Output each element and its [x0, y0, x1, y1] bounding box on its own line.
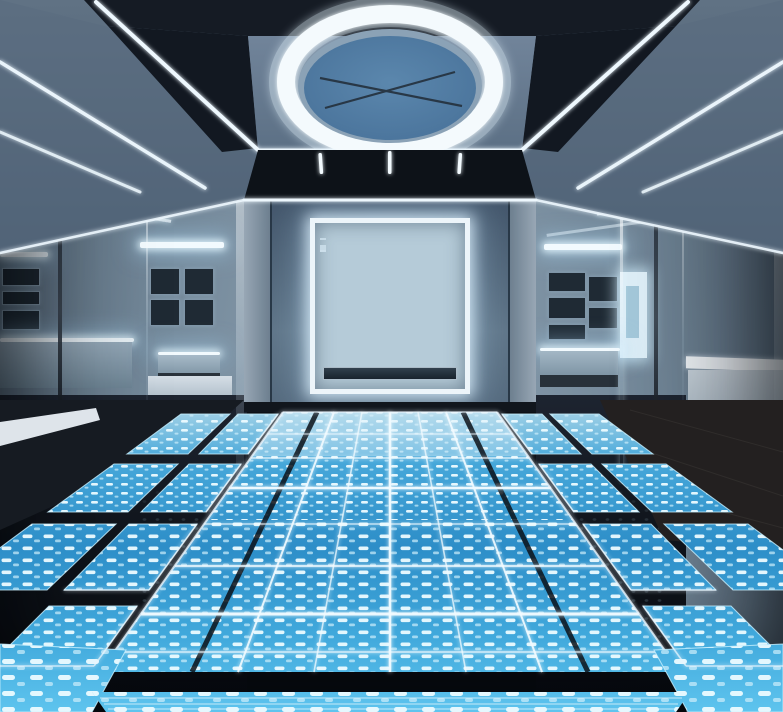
display-table — [158, 355, 220, 373]
wall-pictures-group — [588, 276, 618, 334]
display-case-row — [320, 227, 326, 240]
wall-pictures-group — [150, 268, 214, 326]
table-base-shadow — [540, 375, 618, 387]
display-case-shelves — [320, 227, 460, 365]
ceiling-led-strips — [0, 2, 783, 192]
backlit-panel — [620, 272, 647, 358]
display-case-bottom-shelf — [323, 367, 457, 380]
reflected-light-strip — [546, 214, 687, 237]
reflected-light-strip — [21, 196, 172, 223]
ring-cross-lines — [320, 72, 462, 108]
display-table — [540, 351, 618, 375]
wall-return-right — [510, 200, 536, 412]
ceiling-dark-swath-right — [522, 26, 676, 152]
gallery-room-scene — [0, 0, 783, 712]
display-case — [310, 218, 470, 394]
back-wall — [244, 200, 536, 412]
recessed-spot-light — [754, 216, 764, 220]
white-cabinet — [148, 376, 232, 396]
hanging-tube-lights — [318, 151, 462, 174]
ceiling-central-panel — [248, 36, 536, 150]
ceiling-dark-band — [84, 0, 700, 36]
front-floor-panel — [92, 692, 690, 712]
wall-return-left — [244, 200, 270, 412]
room-ceiling-light — [140, 242, 224, 248]
wall-pictures-group — [2, 268, 40, 334]
ring-inner-disc — [304, 36, 476, 140]
room-ceiling-light — [544, 244, 622, 250]
soffit-recess — [244, 150, 536, 200]
wall-corner-shadow — [508, 200, 510, 412]
wall-corner-shadow — [270, 200, 272, 412]
ceiling-ring-light — [284, 12, 496, 152]
room-ceiling-light — [0, 252, 48, 257]
glass-mullion — [58, 180, 62, 420]
ceiling-dark-swath-left — [108, 26, 258, 152]
wall-pictures-group — [548, 272, 586, 346]
display-counter — [0, 342, 132, 388]
led-floor — [0, 400, 783, 712]
reflected-light-strip — [59, 177, 180, 201]
glass-mullion — [654, 180, 658, 430]
